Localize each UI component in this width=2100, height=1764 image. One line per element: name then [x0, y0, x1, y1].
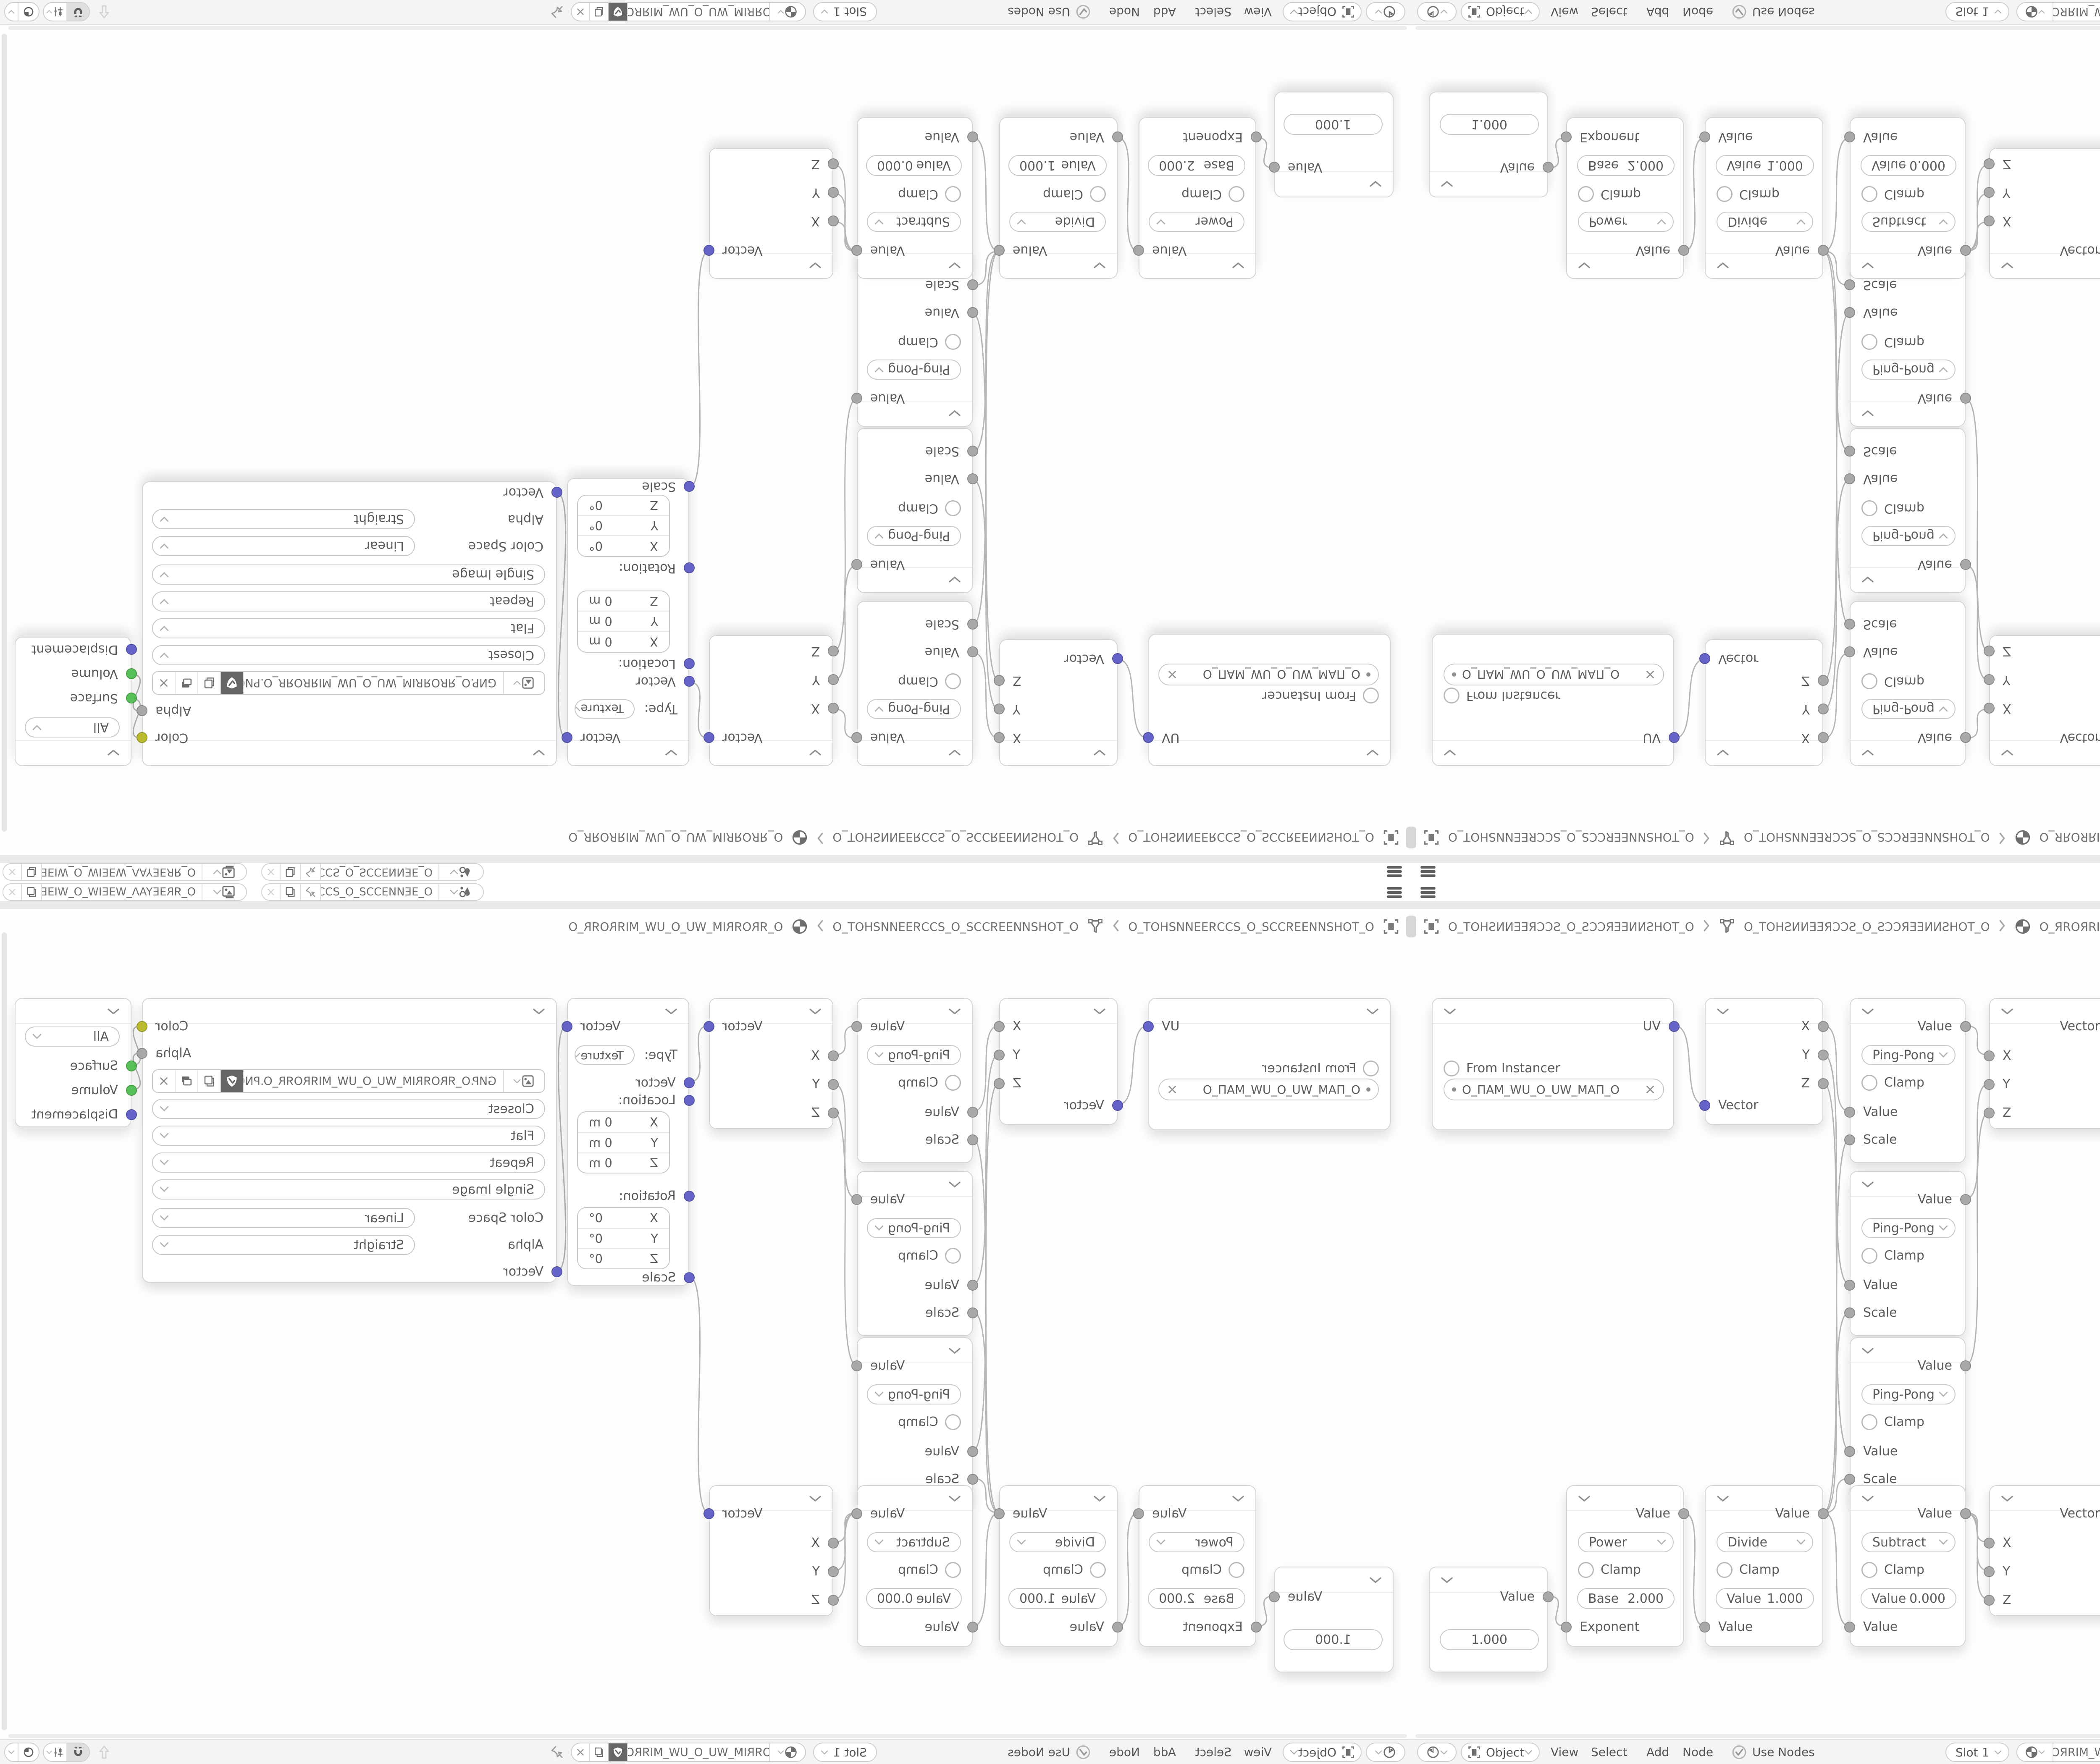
math-pingpong-node-2[interactable]: ValuePing-PongClampValueScale	[1850, 428, 1966, 593]
collapse-chevron-icon[interactable]	[948, 748, 961, 756]
combine2-input-socket[interactable]	[1984, 1538, 1995, 1549]
math2-input-socket[interactable]	[1844, 473, 1855, 484]
number-field[interactable]: Value1.000	[1008, 1588, 1107, 1609]
math-pingpong-node-3[interactable]: ValuePing-PongClampValueScale	[857, 1337, 973, 1502]
dropdown-button[interactable]: Ping-Pong	[1861, 1045, 1956, 1065]
combine1-input-socket[interactable]	[828, 674, 839, 685]
breadcrumb-item[interactable]: O_TOHƧИИƎƎЯƆƆƧ_O_ƧƆƆЯƎƎИИƧHOT_O	[1744, 831, 1990, 845]
breadcrumb-item[interactable]: O_ЯROЯRIM_WU_O_UW_MIЯROЯR_O	[568, 831, 783, 845]
id-name-field[interactable]: O_ПAM_WU_O_UW_MAП_O	[1444, 664, 1664, 685]
unpin-button[interactable]	[97, 1745, 112, 1760]
combine2-output-socket[interactable]	[703, 245, 714, 256]
pin-button[interactable]	[301, 884, 321, 900]
gizmo-button[interactable]	[18, 1743, 39, 1761]
collapse-chevron-icon[interactable]	[948, 408, 961, 417]
separate-output-socket[interactable]	[1818, 1021, 1829, 1032]
collapse-chevron-icon[interactable]	[1369, 179, 1382, 188]
math-subtract-node[interactable]: ValueSubtractClampValue0.000Value	[1850, 117, 1966, 279]
math3-input-socket[interactable]	[1844, 279, 1855, 290]
collapse-chevron-icon[interactable]	[948, 1181, 961, 1190]
node-link[interactable]	[973, 251, 999, 286]
mapping-node[interactable]: VectorType:TextureVectorLocation:X0 mY0 …	[567, 998, 689, 1286]
collapse-chevron-icon[interactable]	[948, 1347, 961, 1356]
menu-view[interactable]: View	[1551, 1743, 1578, 1762]
combine2-input-socket[interactable]	[1984, 1595, 1995, 1606]
combine2-output-socket[interactable]	[703, 1508, 714, 1519]
menu-hamburger-icon[interactable]	[1420, 865, 1439, 879]
breadcrumb-item[interactable]: O_TOHƧИИƎƎЯƆƆƧ_O_ƧƆƆЯƎƎИИƧHOT_O	[1744, 920, 1990, 934]
checkbox[interactable]	[1444, 688, 1459, 703]
datablock-icon-segment[interactable]	[202, 864, 246, 880]
fake-user-button[interactable]	[609, 1743, 628, 1761]
snap-toggle-button[interactable]	[67, 1743, 89, 1761]
checkbox[interactable]	[1861, 1248, 1877, 1264]
imagetex-output-socket[interactable]	[136, 1048, 147, 1059]
close-icon[interactable]	[575, 1747, 586, 1758]
copy-button[interactable]	[198, 1070, 221, 1092]
node-link[interactable]	[689, 682, 709, 738]
fake-user-shield-icon[interactable]	[612, 1746, 624, 1758]
subtract-input-socket[interactable]	[1844, 1622, 1855, 1633]
value1-output-socket[interactable]	[1269, 1591, 1280, 1602]
separate-output-socket[interactable]	[1818, 703, 1829, 714]
close-icon[interactable]	[1644, 1083, 1656, 1096]
number-field[interactable]: Value1.000	[1008, 155, 1107, 176]
image-icon-button[interactable]	[2017, 3, 2053, 21]
collapse-chevron-icon[interactable]	[1093, 1495, 1106, 1504]
mapping-input-socket[interactable]	[684, 481, 695, 492]
snap-settings-icon[interactable]	[52, 1746, 64, 1758]
number-field[interactable]: Base2.000	[1577, 1588, 1675, 1609]
number-field[interactable]: Value0.000	[866, 1588, 962, 1609]
collapse-chevron-icon[interactable]	[809, 260, 822, 269]
collapse-chevron-icon[interactable]	[533, 748, 545, 756]
node-link[interactable]	[1823, 1513, 1850, 1626]
combine1-input-socket[interactable]	[828, 1108, 839, 1118]
object-mode-dropdown[interactable]: Object	[1283, 1743, 1362, 1762]
checkbox[interactable]	[1090, 1562, 1106, 1578]
object-mode-dropdown[interactable]: Object	[1461, 2, 1540, 21]
image-name-field[interactable]: O_ЯROЯRIM_WU_O_UW_MIЯROЯR_O	[2053, 3, 2100, 21]
mapping-output-socket[interactable]	[562, 732, 572, 743]
vector-value-field[interactable]: Z0°	[578, 1248, 669, 1268]
power-output-socket[interactable]	[1133, 245, 1144, 256]
copy-button[interactable]	[281, 884, 301, 900]
node-link[interactable]	[1823, 138, 1850, 251]
slot-dropdown[interactable]: Slot 1	[813, 1743, 877, 1762]
checkbox[interactable]	[945, 1414, 961, 1430]
dropdown-button[interactable]: Subtract	[1861, 212, 1956, 232]
separate-output-socket[interactable]	[994, 732, 1005, 743]
number-field[interactable]: Value1.000	[1716, 1588, 1814, 1609]
close-button[interactable]	[262, 884, 281, 900]
copy-icon[interactable]	[203, 1075, 215, 1087]
math1-output-socket[interactable]	[851, 732, 862, 743]
separate-input-socket[interactable]	[1699, 1100, 1710, 1111]
number-field[interactable]: 1.000	[1440, 1629, 1539, 1650]
menu-select[interactable]: Select	[1591, 1743, 1627, 1762]
collapse-chevron-icon[interactable]	[1717, 1008, 1729, 1017]
close-icon[interactable]	[1166, 668, 1179, 681]
checkbox[interactable]	[1363, 1060, 1379, 1076]
dropdown-button[interactable]: Divide	[1009, 212, 1106, 232]
collapse-chevron-icon[interactable]	[1441, 1577, 1453, 1585]
node-link[interactable]	[1118, 1026, 1148, 1105]
dropdown-button[interactable]: Ping-Pong	[1861, 699, 1956, 719]
checkbox[interactable]	[945, 186, 961, 202]
node-link[interactable]	[557, 1026, 567, 1271]
number-field[interactable]: Value0.000	[1861, 155, 1956, 176]
mapping-input-socket[interactable]	[684, 562, 695, 573]
divide-output-socket[interactable]	[1818, 1508, 1829, 1519]
output-input-socket[interactable]	[126, 644, 137, 655]
image-name-field[interactable]: O_ЯROЯRIM_WU_O_UW_MIЯROЯR_O	[628, 1743, 770, 1761]
math2-output-socket[interactable]	[1960, 559, 1971, 570]
fake-user-button[interactable]	[221, 672, 244, 694]
combine1-input-socket[interactable]	[1984, 646, 1995, 656]
dropdown-button[interactable]: Flat	[152, 1126, 545, 1146]
math1-input-socket[interactable]	[1844, 1134, 1855, 1145]
id-name-field[interactable]: O_ПAM_WU_O_UW_MAП_O	[1444, 1079, 1664, 1100]
value-node[interactable]: Value1.000	[1274, 92, 1394, 197]
copy-icon[interactable]	[26, 886, 37, 898]
fake-user-button[interactable]	[221, 1070, 244, 1092]
images-icon[interactable]	[180, 1075, 193, 1087]
value1-output-socket[interactable]	[1543, 1591, 1554, 1602]
sidebar-collapsed-tab[interactable]	[1411, 827, 1416, 848]
copy-icon[interactable]	[284, 866, 296, 878]
menu-select[interactable]: Select	[1591, 2, 1627, 21]
pin-button[interactable]	[549, 4, 564, 19]
type-dropdown[interactable]: Texture	[575, 699, 635, 719]
datablock-icon-segment[interactable]	[439, 884, 483, 900]
value-node[interactable]: Value1.000	[1274, 1567, 1394, 1672]
datablock-icon-segment[interactable]	[439, 864, 483, 880]
mapping-input-socket[interactable]	[684, 1272, 695, 1283]
copy-button[interactable]	[22, 864, 42, 880]
combine1-output-socket[interactable]	[703, 1021, 714, 1032]
collapse-chevron-icon[interactable]	[2001, 748, 2013, 756]
node-header[interactable]	[1149, 740, 1390, 765]
slot-dropdown[interactable]: Slot 1	[1945, 1743, 2009, 1762]
mapping-input-socket[interactable]	[684, 1191, 695, 1202]
vector-value-field[interactable]: Z0 m	[578, 1152, 669, 1173]
image-texture-node[interactable]: ColorAlphaGИP.O_ЯROЯRIM_WU_O_UW_MIЯROЯR_…	[142, 481, 557, 766]
math-subtract-node[interactable]: ValueSubtractClampValue0.000Value	[1850, 1485, 1966, 1647]
combine2-input-socket[interactable]	[828, 1595, 839, 1606]
overlay-gizmo-icon[interactable]	[22, 1746, 35, 1759]
pin-icon[interactable]	[304, 866, 317, 878]
combine2-input-socket[interactable]	[828, 1566, 839, 1577]
checkbox[interactable]	[1861, 673, 1877, 689]
output-input-socket[interactable]	[126, 693, 137, 703]
node-link[interactable]	[1674, 659, 1705, 738]
vector-value-field[interactable]: Y0 m	[578, 612, 669, 632]
menu-select[interactable]: Select	[1195, 2, 1231, 21]
datablock-name-field[interactable]: O_ƎEИИƎƆƆƧ_O_ƧƆƆƎEИ...	[321, 864, 439, 880]
subtract-input-socket[interactable]	[967, 131, 978, 142]
dropdown-button[interactable]: Repeat	[152, 591, 545, 612]
editor-type-button[interactable]	[1366, 2, 1405, 21]
editor-type-button[interactable]	[1417, 1743, 1457, 1762]
combine1-input-socket[interactable]	[1984, 674, 1995, 685]
power-input-socket[interactable]	[1561, 131, 1572, 142]
output-input-socket[interactable]	[126, 1060, 137, 1071]
combine-xyz-node-top[interactable]: VectorXYZ	[1989, 635, 2100, 766]
combine-xyz-node-bottom[interactable]: VectorXYZ	[1989, 1485, 2100, 1616]
fake-user-shield-icon[interactable]	[612, 6, 624, 18]
collapse-chevron-icon[interactable]	[1861, 1181, 1874, 1190]
vertical-scrollbar[interactable]	[2, 34, 7, 832]
math2-input-socket[interactable]	[1844, 446, 1855, 457]
checkbox[interactable]	[1861, 334, 1877, 350]
close-button[interactable]	[3, 884, 22, 900]
power-input-socket[interactable]	[1251, 1622, 1262, 1633]
math-power-node[interactable]: ValuePowerClampBase2.000Exponent	[1566, 1485, 1684, 1647]
checkbox[interactable]	[1861, 186, 1877, 202]
dropdown-button[interactable]: Ping-Pong	[1861, 1384, 1956, 1404]
math1-output-socket[interactable]	[1960, 732, 1971, 743]
divide-input-socket[interactable]	[1112, 1622, 1123, 1633]
node-link[interactable]	[973, 1026, 999, 1111]
combine-xyz-node-top[interactable]: VectorXYZ	[709, 635, 833, 766]
uv-map-node[interactable]: UVFrom InstancerO_ПAM_WU_O_UW_MAП_O	[1148, 998, 1391, 1130]
slot-dropdown[interactable]: Slot 1	[1945, 2, 2009, 21]
number-field[interactable]: Value0.000	[866, 155, 962, 176]
menu-add[interactable]: Add	[1153, 2, 1176, 21]
node-header[interactable]	[1149, 999, 1390, 1024]
node-link[interactable]	[689, 251, 709, 487]
mapping-input-socket[interactable]	[684, 1077, 695, 1088]
collapse-chevron-icon[interactable]	[2001, 260, 2013, 269]
menu-hamburger-icon[interactable]	[1383, 865, 1402, 879]
menu-node[interactable]: Node	[1683, 2, 1713, 21]
combine1-input-socket[interactable]	[1984, 1079, 1995, 1090]
divide-input-socket[interactable]	[1699, 131, 1710, 142]
vector-value-field[interactable]: X0°	[578, 1208, 669, 1228]
node-link[interactable]	[1684, 138, 1705, 251]
imagetex-input-socket[interactable]	[551, 1266, 562, 1277]
dropdown-button[interactable]: Divide	[1009, 1532, 1106, 1552]
close-button[interactable]	[572, 1743, 590, 1761]
math-subtract-node[interactable]: ValueSubtractClampValue0.000Value	[857, 1485, 973, 1647]
combine1-input-socket[interactable]	[828, 703, 839, 714]
setting-dropdown[interactable]: Straight	[152, 509, 415, 529]
checkbox[interactable]	[1578, 1562, 1594, 1578]
pin-button[interactable]	[301, 864, 321, 880]
math3-output-socket[interactable]	[1960, 393, 1971, 404]
dropdown-button[interactable]: Power	[1578, 212, 1674, 232]
collapse-chevron-icon[interactable]	[533, 1008, 545, 1017]
math1-input-socket[interactable]	[967, 619, 978, 630]
menu-node[interactable]: Node	[1109, 2, 1140, 21]
collapse-chevron-icon[interactable]	[1861, 1495, 1874, 1504]
combine2-input-socket[interactable]	[828, 1538, 839, 1549]
close-icon[interactable]	[157, 677, 170, 689]
math3-input-socket[interactable]	[967, 1446, 978, 1457]
checkbox[interactable]	[1861, 500, 1877, 516]
dropdown-button[interactable]: Ping-Pong	[1861, 360, 1956, 380]
snap-magnet-icon[interactable]	[72, 5, 84, 18]
vector-value-field[interactable]: Y0°	[578, 1228, 669, 1248]
subtract-input-socket[interactable]	[1844, 131, 1855, 142]
math-pingpong-node-1[interactable]: ValuePing-PongClampValueScale	[1850, 998, 1966, 1163]
separate-output-socket[interactable]	[994, 1078, 1005, 1089]
dropdown-button[interactable]: Ping-Pong	[867, 1384, 961, 1404]
dropdown-button[interactable]: Power	[1149, 1532, 1244, 1552]
copy-icon[interactable]	[593, 1747, 604, 1758]
breadcrumb-item[interactable]: O_ЯROЯRIM_WU_O_UW_MIЯROЯR_O	[568, 920, 783, 934]
math2-output-socket[interactable]	[1960, 1194, 1971, 1205]
number-field[interactable]: Base2.000	[1577, 155, 1675, 176]
collapse-chevron-icon[interactable]	[948, 1008, 961, 1017]
dropdown-button[interactable]: Subtract	[867, 212, 961, 232]
math2-input-socket[interactable]	[1844, 1307, 1855, 1318]
node-link[interactable]	[1823, 1478, 1850, 1513]
power-input-socket[interactable]	[1251, 131, 1262, 142]
collapse-chevron-icon[interactable]	[1717, 1495, 1729, 1504]
node-header[interactable]	[1433, 740, 1673, 765]
math2-input-socket[interactable]	[967, 473, 978, 484]
collapse-chevron-icon[interactable]	[1366, 748, 1379, 756]
menu-node[interactable]: Node	[1109, 1743, 1140, 1762]
sidebar-collapsed-tab[interactable]	[1411, 916, 1416, 937]
node-link[interactable]	[689, 1277, 709, 1513]
node-link[interactable]	[1118, 1513, 1139, 1626]
node-header[interactable]	[16, 999, 131, 1024]
mapping-input-socket[interactable]	[684, 676, 695, 687]
sidebar-collapsed-tab[interactable]	[1406, 916, 1411, 937]
vector-value-field[interactable]: X0 m	[578, 1112, 669, 1132]
collapse-chevron-icon[interactable]	[1232, 1495, 1244, 1504]
combine2-input-socket[interactable]	[828, 158, 839, 169]
collapse-chevron-icon[interactable]	[1717, 260, 1729, 269]
combine1-input-socket[interactable]	[828, 1079, 839, 1090]
snap-settings-dropdown[interactable]	[44, 3, 67, 21]
close-icon[interactable]	[575, 6, 586, 17]
math2-input-socket[interactable]	[967, 1307, 978, 1318]
node-link[interactable]	[973, 138, 999, 251]
subtract-output-socket[interactable]	[1960, 1508, 1971, 1519]
imagetex-output-socket[interactable]	[136, 705, 147, 716]
breadcrumb-item[interactable]: O_TOHƧИИƎƎЯƆƆƧ_O_ƧƆƆЯƎƎИИƧHOT_O	[832, 920, 1079, 934]
separate-output-socket[interactable]	[994, 703, 1005, 714]
math-pingpong-node-2[interactable]: ValuePing-PongClampValueScale	[1850, 1171, 1966, 1336]
breadcrumb-item[interactable]: O_TOHƧИИƎƎЯƆƆƧ_O_ƧƆƆЯƎƎИИƧHOT_O	[1448, 831, 1694, 845]
fake-user-shield-icon[interactable]	[225, 676, 239, 690]
vector-value-field[interactable]: Z0 m	[578, 591, 669, 612]
math-subtract-node[interactable]: ValueSubtractClampValue0.000Value	[857, 117, 973, 279]
id-name-field[interactable]: O_ПAM_WU_O_UW_MAП_O	[1158, 1079, 1379, 1100]
dropdown-button[interactable]: Divide	[1717, 212, 1813, 232]
dropdown-button[interactable]: All	[25, 1026, 120, 1047]
math1-input-socket[interactable]	[1844, 646, 1855, 657]
math3-input-socket[interactable]	[1844, 307, 1855, 318]
collapse-chevron-icon[interactable]	[1369, 1577, 1382, 1585]
checkbox[interactable]	[1228, 186, 1244, 202]
dropdown-button[interactable]: Closest	[152, 1099, 545, 1119]
overlay-gizmo-icon[interactable]	[22, 5, 35, 18]
use-nodes-checkbox[interactable]: Use Nodes	[1008, 2, 1091, 21]
close-icon[interactable]	[157, 1075, 170, 1087]
math-power-node[interactable]: ValuePowerClampBase2.000Exponent	[1566, 117, 1684, 279]
collapse-chevron-icon[interactable]	[948, 260, 961, 269]
uvmap-output-socket[interactable]	[1143, 732, 1154, 743]
power-output-socket[interactable]	[1678, 245, 1689, 256]
combine-xyz-node-top[interactable]: VectorXYZ	[1989, 998, 2100, 1129]
combine1-input-socket[interactable]	[828, 646, 839, 656]
math1-input-socket[interactable]	[1844, 1107, 1855, 1118]
collapse-chevron-icon[interactable]	[1441, 179, 1453, 188]
menu-select[interactable]: Select	[1195, 1743, 1231, 1762]
dropdown-button[interactable]: Single Image	[152, 1179, 545, 1200]
collapse-chevron-icon[interactable]	[665, 1008, 677, 1017]
checkbox[interactable]	[945, 673, 961, 689]
breadcrumb-item[interactable]: O_TOHƧИИƎƎЯƆƆƧ_O_ƧƆƆЯƎƎИИƧHOT_O	[1128, 831, 1374, 845]
image-icon-button[interactable]	[770, 3, 805, 21]
combine1-output-socket[interactable]	[703, 732, 714, 743]
output-input-socket[interactable]	[126, 1085, 137, 1096]
gizmo-dropdown[interactable]	[5, 1743, 18, 1761]
copy-icon[interactable]	[26, 866, 37, 878]
separate-output-socket[interactable]	[1818, 675, 1829, 686]
uvmap-output-socket[interactable]	[1669, 732, 1680, 743]
datablock-icon-segment[interactable]	[202, 884, 246, 900]
dropdown-button[interactable]: Ping-Pong	[867, 699, 961, 719]
separate-output-socket[interactable]	[994, 675, 1005, 686]
separate-xyz-node[interactable]: XYZVector	[1705, 998, 1823, 1125]
math-pingpong-node-3[interactable]: ValuePing-PongClampValueScale	[1850, 1337, 1966, 1502]
breadcrumb-item[interactable]: O_TOHƧИИƎƎЯƆƆƧ_O_ƧƆƆЯƎƎИИƧHOT_O	[832, 831, 1079, 845]
math3-input-socket[interactable]	[967, 279, 978, 290]
close-button[interactable]	[572, 3, 590, 21]
node-header[interactable]	[16, 740, 131, 765]
math-power-node[interactable]: ValuePowerClampBase2.000Exponent	[1139, 117, 1256, 279]
number-field[interactable]: 1.000	[1284, 1629, 1383, 1650]
use-nodes-checkbox[interactable]: Use Nodes	[1731, 2, 1815, 21]
combine1-input-socket[interactable]	[828, 1050, 839, 1061]
checkbox[interactable]	[1090, 186, 1106, 202]
imagetex-output-socket[interactable]	[136, 1021, 147, 1032]
menu-view[interactable]: View	[1551, 2, 1578, 21]
node-header[interactable]	[143, 740, 556, 765]
copy-button[interactable]	[590, 1743, 609, 1761]
collapse-chevron-icon[interactable]	[809, 1495, 822, 1504]
dropdown-button[interactable]: All	[25, 717, 120, 738]
separate-xyz-node[interactable]: XYZVector	[999, 639, 1118, 766]
object-mode-dropdown[interactable]: Object	[1283, 2, 1362, 21]
fake-user-button[interactable]	[609, 3, 628, 21]
image-name-field[interactable]: O_ЯROЯRIM_WU_O_UW_MIЯROЯR_O	[2053, 1743, 2100, 1761]
datablock-name-field[interactable]: O_ЯRƎEYAΛ_WƎEIW_O_WIƎEW_ΛAYƎEЯR_O	[42, 884, 202, 900]
vector-value-field[interactable]: Y0°	[578, 516, 669, 536]
uvmap-output-socket[interactable]	[1669, 1021, 1680, 1032]
gizmo-button[interactable]	[18, 3, 39, 21]
setting-dropdown[interactable]: Linear	[152, 1208, 415, 1228]
subtract-input-socket[interactable]	[967, 1622, 978, 1633]
pin-icon[interactable]	[549, 4, 564, 19]
uv-map-node[interactable]: UVFrom InstancerO_ПAM_WU_O_UW_MAП_O	[1432, 998, 1674, 1130]
combine-xyz-node-top[interactable]: VectorXYZ	[709, 998, 833, 1129]
math-divide-node[interactable]: ValueDivideClampValue1.000Value	[999, 1485, 1118, 1647]
unpin-arrow-icon[interactable]	[97, 4, 112, 19]
close-button[interactable]	[262, 864, 281, 880]
combine-xyz-node-bottom[interactable]: VectorXYZ	[1989, 148, 2100, 279]
pack-button[interactable]	[176, 1070, 198, 1092]
divide-output-socket[interactable]	[994, 245, 1005, 256]
math-pingpong-node-1[interactable]: ValuePing-PongClampValueScale	[857, 998, 973, 1163]
math-power-node[interactable]: ValuePowerClampBase2.000Exponent	[1139, 1485, 1256, 1647]
